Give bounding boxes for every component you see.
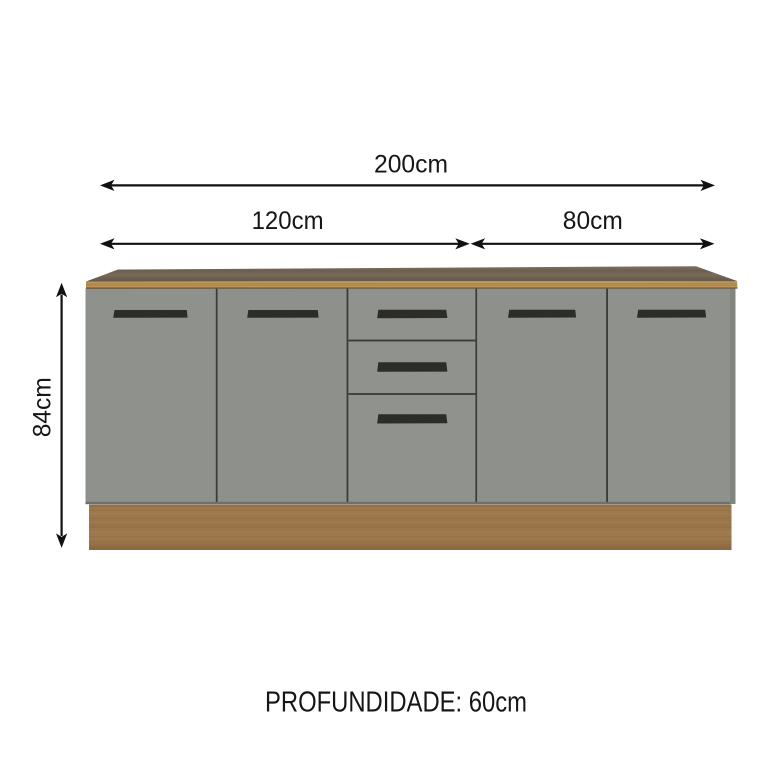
svg-text:84cm: 84cm bbox=[29, 377, 57, 437]
svg-text:120cm: 120cm bbox=[252, 207, 324, 235]
svg-text:PROFUNDIDADE: 60cm: PROFUNDIDADE: 60cm bbox=[265, 687, 527, 719]
svg-text:200cm: 200cm bbox=[374, 151, 448, 179]
svg-text:80cm: 80cm bbox=[563, 207, 623, 235]
